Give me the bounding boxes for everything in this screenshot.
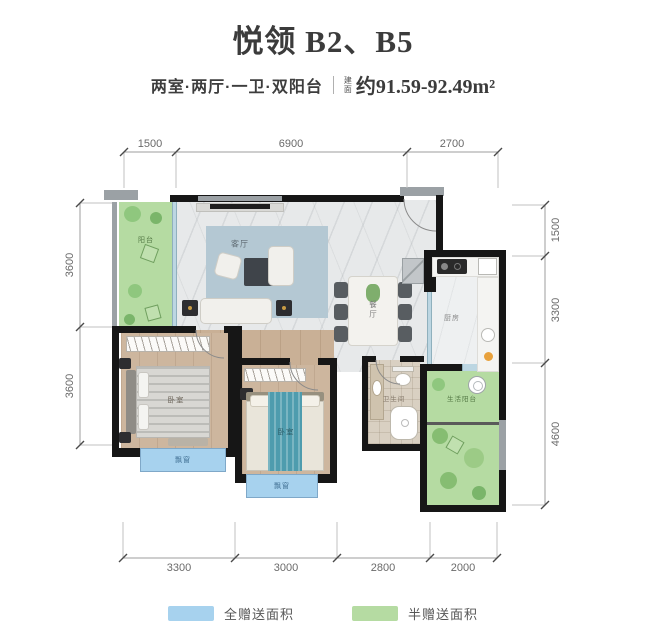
full-gift-label: 全赠送面积 <box>224 604 294 623</box>
fridge <box>402 258 424 284</box>
layout-description: 两室·两厅·一卫·双阳台 <box>151 73 323 97</box>
plant <box>124 206 141 222</box>
dining-chair <box>334 326 348 342</box>
wall-kitchen-top <box>430 250 506 257</box>
plant <box>440 472 457 489</box>
toilet <box>395 373 411 386</box>
washing-machine <box>468 376 486 394</box>
sofa <box>200 298 272 324</box>
dim-bottom-1: 3300 <box>167 562 191 574</box>
legend-item-full-gift: 全赠送面积 <box>168 604 294 623</box>
floorplan-page: 悦领 B2、B5 两室·两厅·一卫·双阳台 建面 约91.59-92.49m² <box>0 0 646 642</box>
plant <box>464 448 484 468</box>
page-title: 悦领 B2、B5 <box>0 16 646 61</box>
dining-chair <box>398 326 412 342</box>
dim-bottom-2: 3000 <box>274 562 298 574</box>
master-wardrobe <box>126 336 210 352</box>
dim-top-2: 6900 <box>279 138 303 150</box>
plant <box>124 314 135 325</box>
life-balcony-divider <box>427 422 499 425</box>
toilet-tank <box>392 366 414 372</box>
wall-master-top <box>113 326 196 333</box>
legend: 全赠送面积 半赠送面积 <box>0 604 646 623</box>
wall-life-balcony-left <box>420 364 427 512</box>
wall-bedroom2-top <box>235 358 290 365</box>
dim-right-3: 4600 <box>550 422 562 446</box>
dim-right-2: 3300 <box>550 298 562 322</box>
bed-bench <box>168 438 208 446</box>
plant <box>128 284 142 298</box>
dim-bottom-4: 2000 <box>451 562 475 574</box>
area-group: 建面 约91.59-92.49m² <box>344 70 495 99</box>
area-label: 建面 <box>344 76 353 94</box>
label-master-bedroom: 卧室 <box>168 395 185 406</box>
dim-left-1: 3600 <box>64 253 76 277</box>
wall-kitchen-right <box>499 250 506 372</box>
plant <box>150 212 162 224</box>
label-bay-window-1: 飘窗 <box>175 455 191 465</box>
label-second-bedroom: 卧室 <box>278 427 295 438</box>
wall-bathroom-left <box>362 356 368 451</box>
label-bay-window-2: 飘窗 <box>274 481 290 491</box>
label-bathroom: 卫生间 <box>383 393 406 403</box>
dim-bottom-3: 2800 <box>371 562 395 574</box>
tv <box>210 204 270 209</box>
kitchen-basin <box>481 328 495 342</box>
label-dining: 餐厅 <box>368 301 379 320</box>
dining-chair <box>334 304 348 320</box>
kitchen-accessory <box>484 352 493 361</box>
label-living: 客厅 <box>231 239 249 250</box>
rail-life-balcony-right <box>499 420 506 470</box>
wall-cap-top-left <box>104 190 138 200</box>
balcony-rail-left <box>112 202 117 326</box>
area-value: 约91.59-92.49m² <box>356 70 495 99</box>
wall-master-right <box>228 326 242 448</box>
dining-chair <box>398 282 412 298</box>
dining-chair <box>334 282 348 298</box>
label-balcony: 阳台 <box>138 235 154 245</box>
dim-top-3: 2700 <box>440 138 464 150</box>
plant <box>432 428 448 444</box>
balcony-living-window <box>172 202 177 326</box>
side-table-right <box>276 300 292 316</box>
plant <box>432 378 445 391</box>
dim-top-1: 1500 <box>138 138 162 150</box>
armchair <box>268 246 294 286</box>
half-gift-swatch <box>352 606 398 621</box>
wall-bedroom2-bottom-right <box>318 474 337 483</box>
bedroom2-wardrobe <box>244 368 306 382</box>
master-pillow <box>138 372 149 398</box>
wall-bedroom2-bottom-left <box>235 474 246 483</box>
dim-right-1: 1500 <box>550 218 562 242</box>
subtitle-row: 两室·两厅·一卫·双阳台 建面 约91.59-92.49m² <box>0 70 646 99</box>
kitchen-sink <box>478 258 497 275</box>
dim-left-2: 3600 <box>64 374 76 398</box>
bathtub <box>390 406 418 440</box>
wall-bedroom2-right <box>330 358 337 474</box>
divider <box>333 76 334 94</box>
nightstand <box>119 432 131 443</box>
stove <box>437 259 467 274</box>
half-gift-label: 半赠送面积 <box>408 604 478 623</box>
wall-bathroom-bottom <box>362 444 426 451</box>
label-kitchen: 厨房 <box>444 313 460 323</box>
kitchen-sliding-door <box>427 292 432 368</box>
master-bed-headboard <box>126 370 136 434</box>
dining-chair <box>398 304 412 320</box>
side-table-left <box>182 300 198 316</box>
window-top-living <box>198 196 282 201</box>
label-life-balcony: 生活阳台 <box>447 393 477 403</box>
legend-item-half-gift: 半赠送面积 <box>352 604 478 623</box>
wall-bathroom-top-right <box>400 356 424 362</box>
nightstand <box>119 358 131 369</box>
wall-entry-right <box>436 195 443 254</box>
wall-left-lower <box>112 326 119 457</box>
bathroom-sink <box>372 380 382 396</box>
master-pillow <box>138 404 149 430</box>
wall-master-bottom-left <box>112 448 140 457</box>
wall-life-balcony-bottom <box>420 505 506 512</box>
wall-between-bays <box>235 448 242 474</box>
table-centerpiece <box>366 284 380 302</box>
wall-life-balcony-right-upper <box>499 372 506 420</box>
plant <box>472 486 486 500</box>
full-gift-swatch <box>168 606 214 621</box>
